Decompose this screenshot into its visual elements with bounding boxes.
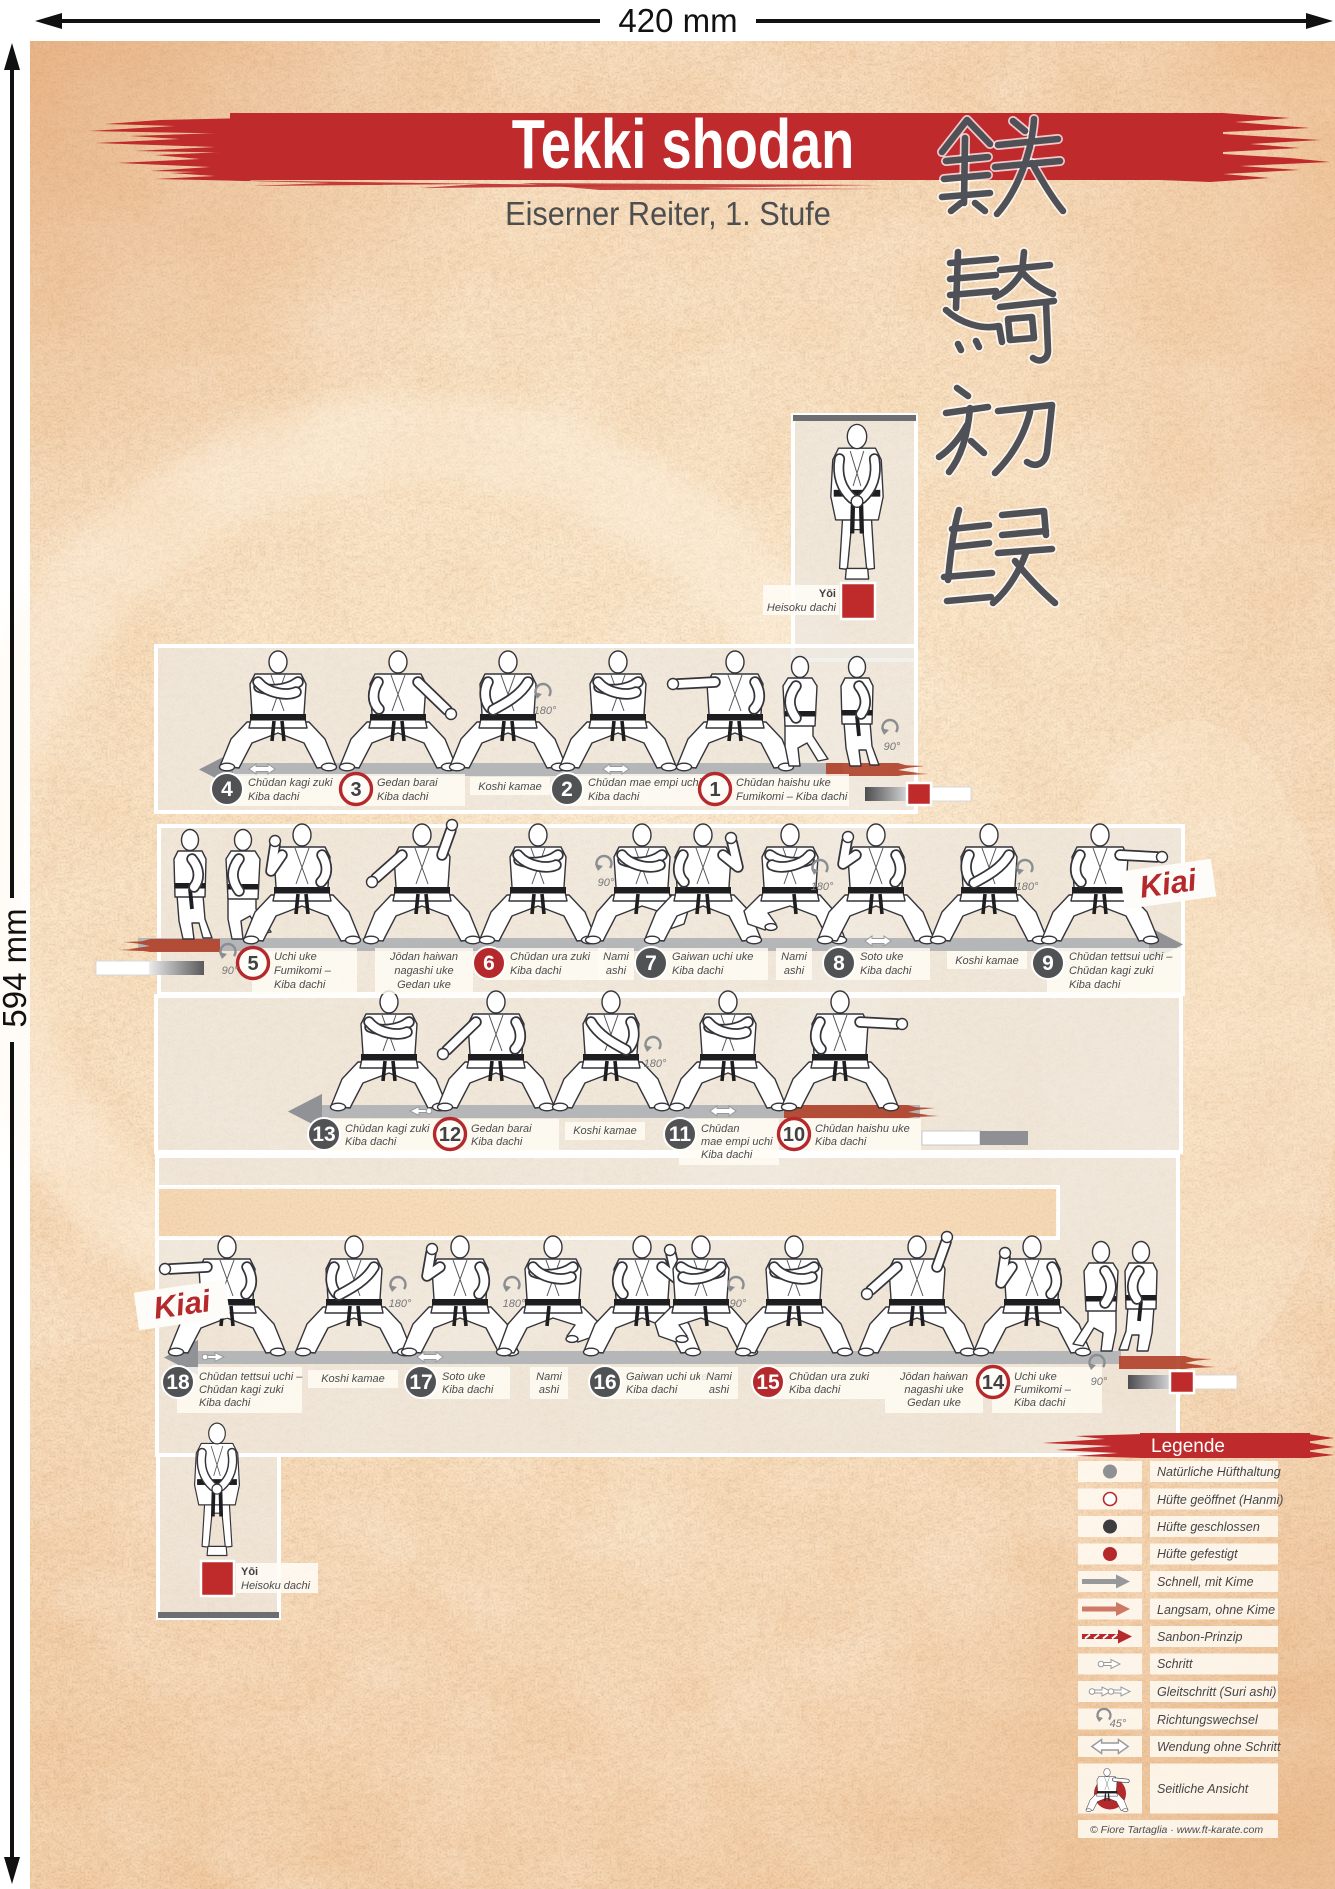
svg-text:180°: 180° (503, 1298, 526, 1310)
svg-text:Wendung ohne Schritt: Wendung ohne Schritt (1157, 1740, 1281, 1754)
svg-text:Kiba dachi: Kiba dachi (1014, 1397, 1066, 1409)
svg-text:Fumikomi –: Fumikomi – (274, 965, 332, 977)
svg-text:Schnell, mit Kime: Schnell, mit Kime (1157, 1575, 1254, 1589)
svg-text:Kiba dachi: Kiba dachi (860, 965, 912, 977)
svg-text:Gaiwan uchi uke: Gaiwan uchi uke (672, 951, 753, 963)
svg-text:Natürliche Hüfthaltung: Natürliche Hüfthaltung (1157, 1465, 1281, 1479)
svg-text:Gedan barai: Gedan barai (471, 1123, 532, 1135)
svg-text:4: 4 (221, 778, 233, 801)
svg-text:ashi: ashi (784, 965, 805, 977)
svg-text:Kiba dachi: Kiba dachi (815, 1136, 867, 1148)
svg-text:Kiba dachi: Kiba dachi (626, 1384, 678, 1396)
svg-text:Hüfte geöffnet (Hanmi): Hüfte geöffnet (Hanmi) (1157, 1493, 1283, 1507)
svg-text:Hüfte gefestigt: Hüfte gefestigt (1157, 1547, 1238, 1561)
svg-text:Gaiwan uchi uke: Gaiwan uchi uke (626, 1371, 707, 1383)
svg-text:180°: 180° (389, 1298, 412, 1310)
svg-text:Sanbon-Prinzip: Sanbon-Prinzip (1157, 1630, 1243, 1644)
svg-text:Gedan uke: Gedan uke (907, 1397, 961, 1409)
svg-text:1: 1 (709, 779, 720, 801)
svg-text:Richtungswechsel: Richtungswechsel (1157, 1713, 1259, 1727)
svg-text:Kiba dachi: Kiba dachi (248, 791, 300, 803)
svg-text:Gedan barai: Gedan barai (377, 777, 438, 789)
svg-text:Chūdan mae empi uchi: Chūdan mae empi uchi (588, 777, 702, 789)
svg-text:Kiba dachi: Kiba dachi (510, 965, 562, 977)
svg-text:3: 3 (350, 779, 361, 801)
svg-text:45°: 45° (1110, 1718, 1127, 1730)
svg-text:Nami: Nami (781, 951, 807, 963)
svg-text:180°: 180° (1016, 881, 1039, 893)
svg-text:Koshi kamae: Koshi kamae (321, 1373, 385, 1385)
svg-text:Eiserner Reiter, 1. Stufe: Eiserner Reiter, 1. Stufe (505, 195, 831, 232)
svg-text:Fumikomi – Kiba dachi: Fumikomi – Kiba dachi (736, 791, 848, 803)
svg-text:Chūdan: Chūdan (701, 1123, 740, 1135)
svg-text:Jōdan haiwan: Jōdan haiwan (899, 1371, 968, 1383)
svg-text:nagashi uke: nagashi uke (904, 1384, 963, 1396)
svg-text:7: 7 (645, 952, 657, 975)
svg-text:15: 15 (756, 1371, 780, 1394)
svg-text:Yōi: Yōi (241, 1566, 258, 1578)
svg-text:5: 5 (247, 953, 258, 975)
svg-text:6: 6 (483, 952, 495, 975)
svg-text:Chūdan tettsui uchi –: Chūdan tettsui uchi – (1069, 951, 1173, 963)
svg-text:180°: 180° (644, 1058, 667, 1070)
svg-text:Seitliche Ansicht: Seitliche Ansicht (1157, 1782, 1249, 1796)
svg-text:Kiba dachi: Kiba dachi (672, 965, 724, 977)
svg-text:Nami: Nami (603, 951, 629, 963)
svg-text:Chūdan haishu uke: Chūdan haishu uke (736, 777, 831, 789)
svg-text:14: 14 (982, 1372, 1005, 1394)
svg-text:90°: 90° (1091, 1376, 1108, 1388)
svg-text:Chūdan kagi zuki: Chūdan kagi zuki (1069, 965, 1154, 977)
svg-text:© Fiore Tartaglia · www.ft-kar: © Fiore Tartaglia · www.ft-karate.com (1090, 1824, 1263, 1836)
svg-text:Chūdan ura zuki: Chūdan ura zuki (510, 951, 591, 963)
svg-text:Nami: Nami (536, 1371, 562, 1383)
svg-text:180°: 180° (534, 705, 557, 717)
svg-text:90°: 90° (884, 741, 901, 753)
svg-text:Kiba dachi: Kiba dachi (377, 791, 429, 803)
svg-text:Soto uke: Soto uke (442, 1371, 485, 1383)
svg-text:Kiba dachi: Kiba dachi (789, 1384, 841, 1396)
svg-text:nagashi uke: nagashi uke (394, 965, 453, 977)
svg-text:11: 11 (669, 1123, 692, 1146)
svg-text:Legende: Legende (1151, 1436, 1225, 1457)
svg-text:Gleitschritt (Suri ashi): Gleitschritt (Suri ashi) (1157, 1685, 1276, 1699)
svg-text:mae empi uchi: mae empi uchi (701, 1136, 773, 1148)
svg-text:ashi: ashi (606, 965, 627, 977)
svg-text:Kiba dachi: Kiba dachi (345, 1136, 397, 1148)
svg-text:Langsam, ohne Kime: Langsam, ohne Kime (1157, 1603, 1275, 1617)
svg-text:Nami: Nami (706, 1371, 732, 1383)
svg-text:Kiba dachi: Kiba dachi (199, 1397, 251, 1409)
svg-text:Chūdan ura zuki: Chūdan ura zuki (789, 1371, 870, 1383)
svg-text:Hüfte geschlossen: Hüfte geschlossen (1157, 1520, 1260, 1534)
svg-text:Schritt: Schritt (1157, 1657, 1193, 1671)
svg-text:Fumikomi –: Fumikomi – (1014, 1384, 1072, 1396)
svg-text:Kiba dachi: Kiba dachi (1069, 979, 1121, 991)
svg-text:420 mm: 420 mm (618, 2, 737, 39)
svg-text:2: 2 (561, 778, 573, 801)
svg-text:18: 18 (166, 1371, 190, 1394)
svg-text:Koshi kamae: Koshi kamae (573, 1125, 637, 1137)
svg-text:13: 13 (312, 1123, 335, 1146)
svg-text:Heisoku dachi: Heisoku dachi (767, 602, 837, 614)
svg-text:Chūdan kagi zuki: Chūdan kagi zuki (199, 1384, 284, 1396)
svg-text:Chūdan tettsui uchi –: Chūdan tettsui uchi – (199, 1371, 303, 1383)
svg-text:Jōdan haiwan: Jōdan haiwan (389, 951, 458, 963)
svg-text:ashi: ashi (539, 1384, 560, 1396)
svg-text:Uchi uke: Uchi uke (1014, 1371, 1057, 1383)
svg-text:16: 16 (593, 1371, 616, 1394)
svg-text:Chūdan kagi zuki: Chūdan kagi zuki (345, 1123, 430, 1135)
svg-text:Uchi uke: Uchi uke (274, 951, 317, 963)
svg-text:Kiba dachi: Kiba dachi (442, 1384, 494, 1396)
svg-text:Chūdan haishu uke: Chūdan haishu uke (815, 1123, 910, 1135)
svg-text:Gedan uke: Gedan uke (397, 979, 451, 991)
svg-text:90°: 90° (598, 877, 615, 889)
svg-text:ashi: ashi (709, 1384, 730, 1396)
svg-text:9: 9 (1042, 952, 1054, 975)
svg-text:90°: 90° (222, 965, 239, 977)
svg-text:Chūdan kagi zuki: Chūdan kagi zuki (248, 777, 333, 789)
svg-text:17: 17 (409, 1371, 432, 1394)
svg-text:90°: 90° (730, 1298, 747, 1310)
svg-text:Tekki shodan: Tekki shodan (512, 105, 855, 183)
svg-text:Heisoku dachi: Heisoku dachi (241, 1580, 311, 1592)
svg-text:12: 12 (439, 1124, 461, 1146)
svg-text:Soto uke: Soto uke (860, 951, 903, 963)
svg-text:Kiba dachi: Kiba dachi (274, 979, 326, 991)
svg-text:Kiba dachi: Kiba dachi (701, 1149, 753, 1161)
svg-text:Yōi: Yōi (819, 588, 836, 600)
svg-text:Kiba dachi: Kiba dachi (588, 791, 640, 803)
svg-text:10: 10 (783, 1124, 805, 1146)
svg-text:Koshi kamae: Koshi kamae (478, 781, 542, 793)
svg-text:Koshi kamae: Koshi kamae (955, 955, 1019, 967)
svg-text:594 mm: 594 mm (0, 908, 33, 1027)
svg-text:Kiba dachi: Kiba dachi (471, 1136, 523, 1148)
svg-text:8: 8 (833, 952, 845, 975)
svg-text:180°: 180° (811, 881, 834, 893)
